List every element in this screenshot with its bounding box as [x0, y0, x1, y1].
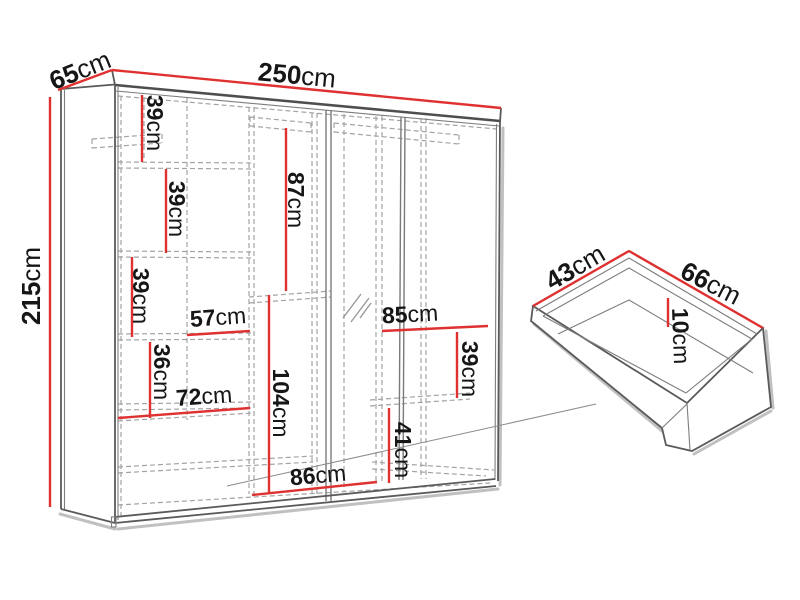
wardrobe-outline: [61, 70, 501, 527]
mirror-icon: [343, 294, 371, 322]
drawer-shadow: [534, 324, 773, 454]
dim-label-drawer-depth: 43cm: [540, 238, 610, 296]
dim-label-left-shelf-1: 39cm: [142, 95, 168, 151]
dim-label-right-lower: 41cm: [390, 422, 416, 478]
dim-label-drawer-inner-height: 10cm: [667, 307, 695, 364]
diagram-canvas: 65cm 250cm 215cm 39cm 39cm 39cm 87cm 57c…: [0, 0, 800, 600]
dim-label-middle-lower: 104cm: [268, 368, 294, 437]
dim-label-middle-bottom-width: 86cm: [289, 460, 347, 491]
dim-label-left-shelf-width: 57cm: [189, 302, 247, 332]
dim-label-wardrobe-height: 215cm: [16, 247, 46, 325]
dim-label-drawer-width: 66cm: [676, 255, 746, 311]
dim-label-left-section-width: 72cm: [175, 381, 233, 411]
dim-label-left-shelf-3: 39cm: [128, 268, 154, 324]
wardrobe-dimension-diagram: 65cm 250cm 215cm 39cm 39cm 39cm 87cm 57c…: [0, 0, 800, 600]
dim-label-right-section-width: 85cm: [381, 300, 439, 329]
dim-label-wardrobe-width: 250cm: [257, 56, 338, 93]
dim-label-left-shelf-4: 36cm: [149, 344, 175, 400]
dim-label-right-shelf: 39cm: [457, 341, 483, 397]
dim-label-left-shelf-2: 39cm: [164, 181, 190, 237]
dim-label-middle-opening: 87cm: [283, 172, 309, 228]
